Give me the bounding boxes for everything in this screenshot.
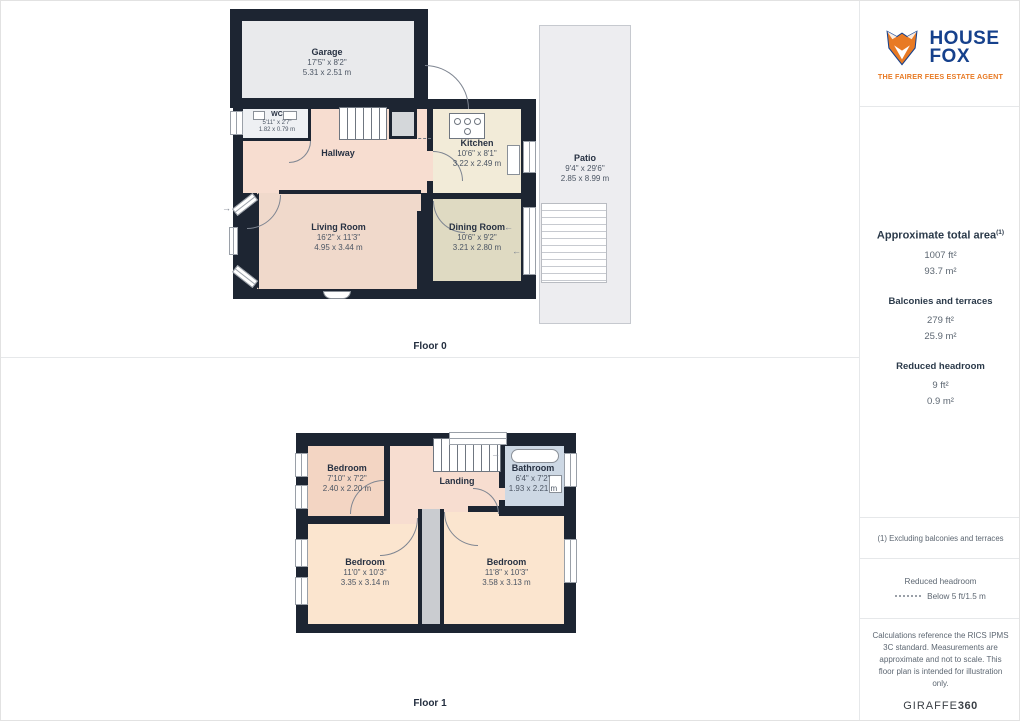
wc-cistern (253, 111, 265, 120)
burner-icon (464, 118, 471, 125)
kitchen-counter (507, 145, 520, 175)
window-bedroomtop-1 (295, 453, 308, 477)
room-garage (242, 21, 414, 98)
vent (323, 291, 351, 299)
wc-window (230, 111, 243, 135)
total-area-heading: Approximate total area(1) (860, 229, 1020, 242)
legend-entry: Below 5 ft/1.5 m (927, 592, 986, 601)
logo-text-house: HOUSE (929, 30, 999, 47)
burner-icon (474, 118, 481, 125)
chimney (418, 509, 444, 624)
floorplan-canvas: ← ← → Garage 17'5" x 8'2" 5.31 x 2.51 m … (1, 1, 859, 721)
fox-icon (881, 27, 923, 69)
footnote: (1) Excluding balconies and terraces (860, 517, 1020, 558)
dotted-line-swatch (895, 595, 921, 597)
total-area-metric: 93.7 m² (860, 264, 1020, 280)
sliding-door-arrow: ← (512, 247, 521, 256)
window-bedroomleft-2 (295, 577, 308, 605)
balconies-imperial: 279 ft² (860, 313, 1020, 329)
balconies-heading: Balconies and terraces (860, 296, 1020, 307)
giraffe360-brand: GIRAFFE360 (903, 700, 978, 712)
window-bedroomtop-2 (295, 485, 308, 509)
floors-divider (1, 357, 859, 358)
wall-living-dining (417, 211, 424, 289)
garage-door-arc (425, 65, 469, 109)
total-area-imperial: 1007 ft² (860, 248, 1020, 264)
reduced-headroom-imperial: 9 ft² (860, 378, 1020, 394)
room-living (257, 193, 421, 289)
balconies-metric: 25.9 m² (860, 329, 1020, 345)
sliding-door-arrow: ← (504, 223, 513, 232)
legend-title: Reduced headroom (905, 577, 977, 586)
wc-sink (283, 111, 297, 120)
wall-kitchen-dining (459, 193, 521, 199)
wall-bedroomtop-landing (384, 446, 390, 518)
stairs-floor0 (339, 107, 387, 140)
window-bedroomleft-1 (295, 539, 308, 567)
window-bathroom (564, 453, 577, 487)
floor1-label: Floor 1 (1, 698, 859, 709)
area-summary: Approximate total area(1) 1007 ft² 93.7 … (860, 107, 1020, 517)
burner-icon (454, 118, 461, 125)
patio-sliding-door (523, 207, 536, 275)
reduced-headroom-metric: 0.9 m² (860, 394, 1020, 410)
entrance-arrow: → (222, 204, 231, 213)
bathtub-icon (511, 449, 559, 463)
patio-deck (541, 203, 607, 283)
disclaimer-text: Calculations reference the RICS IPMS 3C … (872, 630, 1009, 690)
closet (389, 109, 417, 139)
logo-text-fox: FOX (929, 48, 999, 65)
wall-bathroom-bottom (499, 510, 564, 516)
bathroom-sink-icon (549, 475, 562, 493)
kitchen-window (523, 141, 536, 173)
floor0-label: Floor 0 (1, 341, 859, 352)
window-bedroomright (564, 539, 577, 583)
info-sidebar: HOUSE FOX THE FAIRER FEES ESTATE AGENT A… (859, 1, 1020, 721)
disclaimer-section: Calculations reference the RICS IPMS 3C … (860, 618, 1020, 721)
burner-icon (464, 128, 471, 135)
wall-hallway-living (279, 190, 421, 194)
bay-window-mid (229, 227, 238, 255)
wall-bedroomtop-bottom (308, 516, 390, 524)
housefox-logo: HOUSE FOX THE FAIRER FEES ESTATE AGENT (860, 1, 1020, 107)
floorplan-page: ← ← → Garage 17'5" x 8'2" 5.31 x 2.51 m … (0, 0, 1020, 721)
wall-hallway-kitchen-a (427, 109, 433, 151)
window-landing-top (449, 432, 507, 445)
wall-hallway-kitchen-b (427, 181, 433, 193)
stove-icon (449, 113, 485, 139)
stairs-arrow: → (491, 450, 500, 459)
logo-tagline: THE FAIRER FEES ESTATE AGENT (878, 72, 1003, 81)
legend: Reduced headroom Below 5 ft/1.5 m (860, 558, 1020, 618)
reduced-headroom-heading: Reduced headroom (860, 361, 1020, 372)
